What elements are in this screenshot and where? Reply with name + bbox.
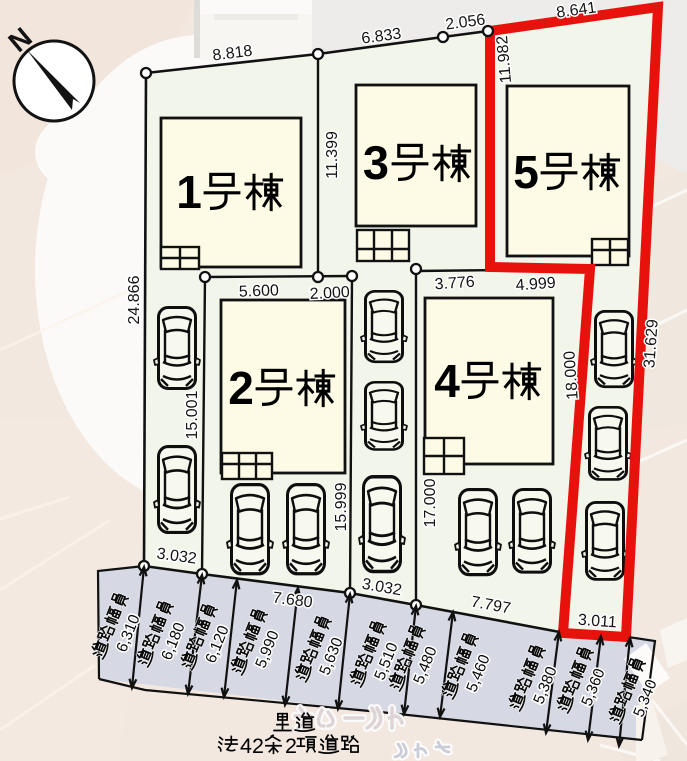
svg-text:15.999: 15.999 <box>333 482 350 531</box>
svg-text:31.629: 31.629 <box>641 319 661 369</box>
svg-text:3: 3 <box>363 136 389 189</box>
svg-text:2: 2 <box>228 362 254 414</box>
svg-text:2.000: 2.000 <box>309 284 350 303</box>
svg-text:3.776: 3.776 <box>434 274 475 294</box>
svg-text:42: 42 <box>240 734 264 758</box>
svg-text:15.001: 15.001 <box>184 390 201 439</box>
svg-text:4: 4 <box>434 355 460 407</box>
svg-text:17.000: 17.000 <box>422 478 439 527</box>
svg-text:5.600: 5.600 <box>239 282 280 300</box>
svg-text:5: 5 <box>513 146 539 198</box>
svg-text:1: 1 <box>176 166 202 218</box>
svg-text:11.399: 11.399 <box>324 131 341 179</box>
svg-text:24.866: 24.866 <box>126 275 143 324</box>
svg-text:3.011: 3.011 <box>577 612 617 632</box>
svg-text:4.999: 4.999 <box>515 275 556 295</box>
svg-text:18.000: 18.000 <box>561 350 581 400</box>
svg-text:2: 2 <box>285 734 297 758</box>
